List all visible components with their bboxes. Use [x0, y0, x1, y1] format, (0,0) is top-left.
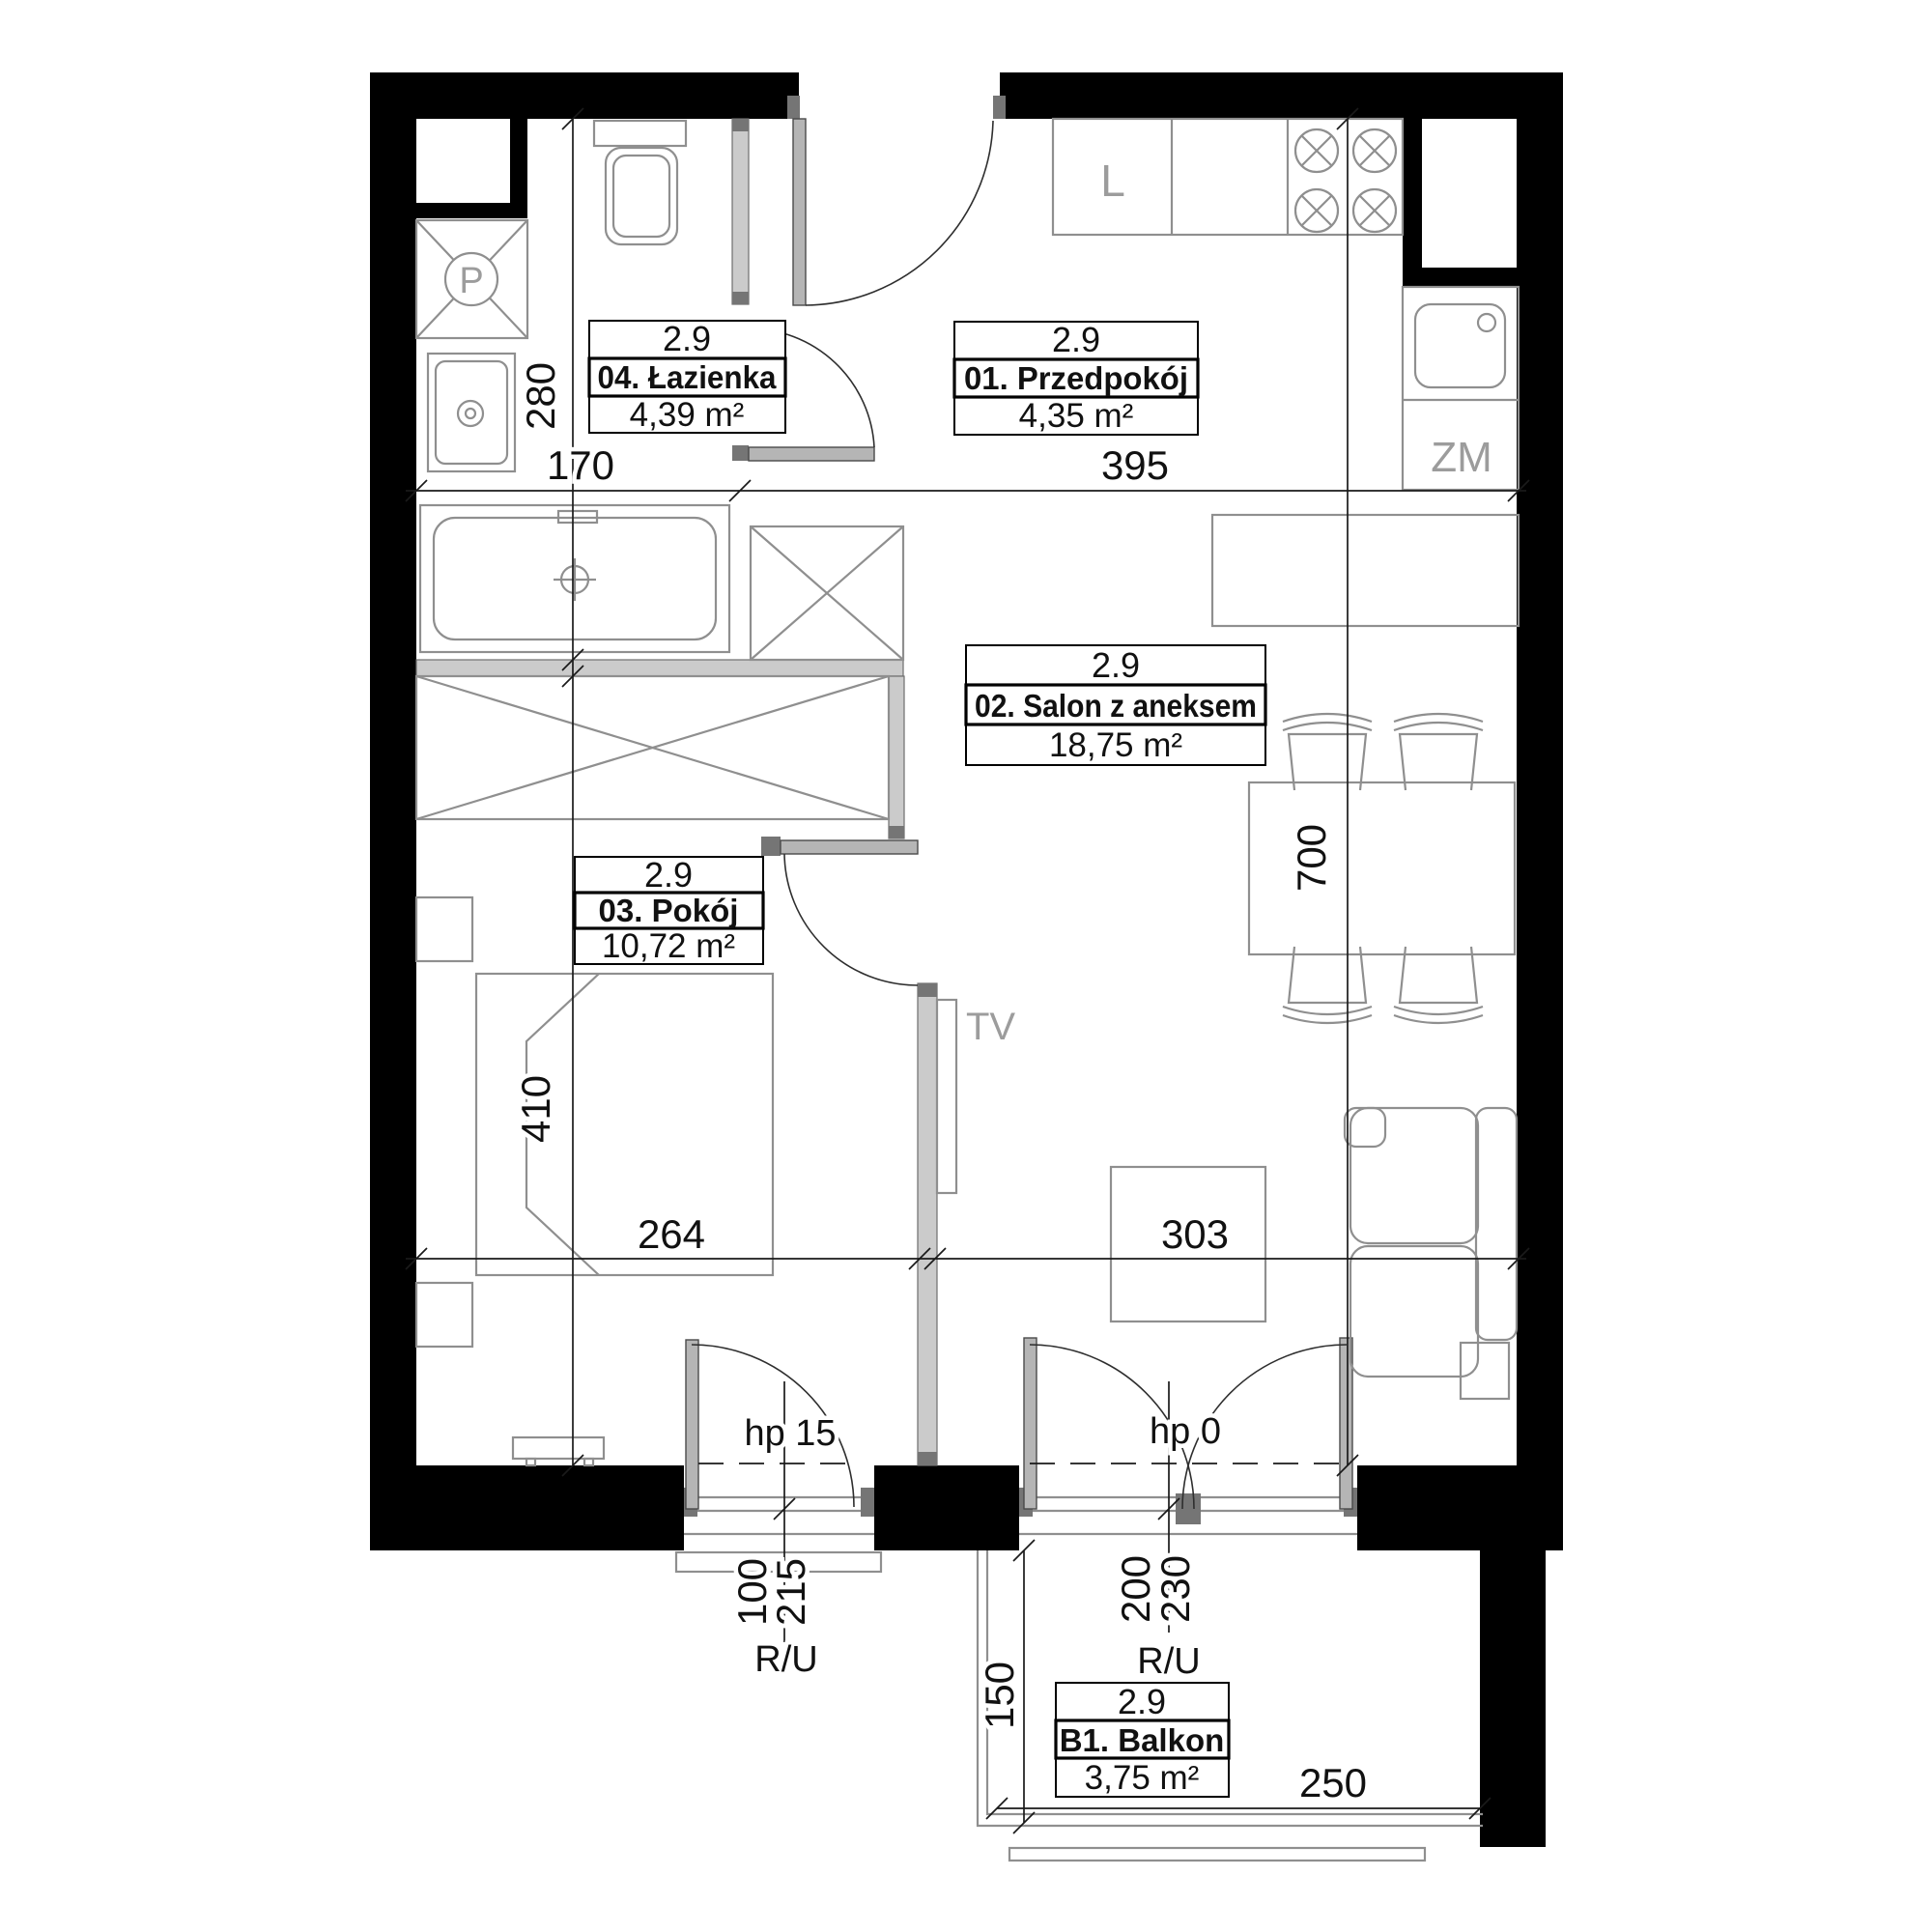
jamb-cap — [732, 292, 749, 304]
chair-back — [1283, 1007, 1372, 1014]
sink-drain-inner — [466, 409, 475, 418]
radiator-foot — [584, 1459, 593, 1465]
dim-303: 303 — [1161, 1211, 1229, 1257]
dim-230: 230 — [1152, 1555, 1198, 1623]
sofa-back — [1476, 1108, 1517, 1340]
burner-cross — [1301, 195, 1332, 226]
ceiling-height: 2.9 — [1118, 1682, 1166, 1721]
room-label-balcony: 2.9 B1. Balkon 3,75 m² — [1056, 1682, 1229, 1797]
balcony — [978, 1550, 1483, 1861]
kitchen-counter-dividers — [1172, 119, 1288, 235]
nightstand-top — [416, 897, 472, 961]
chair-back — [1394, 723, 1483, 730]
dim-170: 170 — [547, 442, 614, 488]
ceiling-height: 2.9 — [1092, 645, 1140, 685]
room-label-bedroom: 2.9 03. Pokój 10,72 m² — [575, 855, 763, 965]
wall-left — [370, 72, 416, 1550]
room-name: 04. Łazienka — [598, 359, 778, 395]
sofa-seat — [1350, 1246, 1478, 1377]
tv-label: TV — [966, 1006, 1015, 1048]
bedroom-door-leaf — [781, 840, 918, 854]
jamb-cap — [787, 96, 800, 119]
balcony-door-leaf-left — [1024, 1338, 1037, 1509]
dim-250: 250 — [1299, 1760, 1367, 1805]
room-label-salon: 2.9 02. Salon z aneksem 18,75 m² — [966, 645, 1265, 765]
shaft-right — [1422, 119, 1517, 268]
toilet-cistern — [594, 121, 686, 146]
chair-back — [1394, 1015, 1483, 1023]
toilet-seat — [613, 156, 669, 237]
room-name: 01. Przedpokój — [964, 360, 1188, 396]
wall-bottom-right — [1357, 1465, 1563, 1550]
partition-room-salon — [918, 983, 937, 1465]
floor-plan-drawing: P L — [0, 0, 1932, 1932]
kitchen-peninsula — [1212, 515, 1519, 626]
entrance-door — [787, 96, 1006, 305]
dim-200: 200 — [1113, 1555, 1158, 1623]
washing-machine: P — [416, 220, 527, 338]
cooktop — [1295, 129, 1396, 232]
dim-280: 280 — [518, 362, 563, 430]
wall-bottom-left — [370, 1465, 684, 1550]
dim-700: 700 — [1289, 824, 1334, 892]
burner-cross — [1359, 195, 1390, 226]
balcony-rail-outer — [978, 1550, 1483, 1826]
sofa — [1345, 1108, 1517, 1399]
wall-top-left — [370, 72, 799, 119]
nightstand-bottom — [416, 1283, 472, 1347]
room-area: 18,75 m² — [1049, 726, 1182, 764]
sink-drain — [458, 401, 483, 426]
fridge-label: L — [1100, 156, 1125, 206]
bathroom-sink — [428, 354, 515, 471]
window-leaf — [686, 1340, 698, 1509]
wall-balcony-right — [1480, 1550, 1546, 1847]
jamb-cap — [993, 96, 1006, 119]
room-area: 3,75 m² — [1085, 1759, 1200, 1797]
sink-cabinet — [428, 354, 515, 471]
window-opening — [684, 1465, 874, 1550]
partition-hall-nook — [889, 676, 904, 838]
room-name: 02. Salon z aneksem — [975, 688, 1257, 724]
wardrobe-bedroom-cross — [416, 676, 889, 819]
bedroom-door — [781, 840, 918, 985]
sofa-side-table — [1461, 1343, 1509, 1399]
chair-back — [1283, 723, 1372, 730]
radiator — [513, 1437, 604, 1465]
sofa-chaise — [1350, 1108, 1478, 1243]
partition-bathroom-east — [732, 119, 749, 304]
dim-264: 264 — [638, 1211, 705, 1257]
jamb-cap — [889, 826, 904, 838]
shaft-left — [416, 119, 510, 203]
entrance-door-leaf — [793, 119, 806, 305]
jamb-cap — [918, 983, 937, 997]
bedroom-door-swing — [784, 854, 918, 985]
ceiling-height: 2.9 — [1052, 320, 1100, 359]
partition-bathroom-south — [416, 660, 903, 676]
wall-right — [1517, 119, 1563, 1465]
window-hp15 — [676, 1340, 881, 1572]
balcony-sill-height: hp 0 — [1150, 1411, 1221, 1452]
toilet — [594, 121, 686, 244]
bathtub-faucet-cross — [554, 558, 596, 601]
washer-label: P — [459, 261, 483, 301]
chair — [1394, 714, 1483, 790]
radiator-foot — [526, 1459, 535, 1465]
jamb-cap — [732, 119, 749, 131]
bathtub — [420, 505, 729, 652]
ceiling-height: 2.9 — [644, 855, 693, 895]
kitchen-sink-tap — [1478, 314, 1495, 331]
kitchen-right-counter: ZM — [1403, 287, 1519, 490]
room-label-bathroom: 2.9 04. Łazienka 4,39 m² — [589, 319, 785, 434]
wardrobe-hall-cross — [751, 526, 903, 660]
balcony-ru-label: R/U — [1137, 1641, 1200, 1682]
chair-back — [1394, 714, 1483, 722]
dishwasher-label: ZM — [1431, 434, 1492, 481]
chair — [1283, 947, 1372, 1023]
entrance-door-swing — [806, 121, 993, 305]
window-ru-label: R/U — [754, 1639, 817, 1680]
room-area: 4,35 m² — [1019, 397, 1134, 435]
dim-215: 215 — [768, 1558, 813, 1626]
balcony-slab-edge — [1009, 1848, 1425, 1861]
wall-bottom-middle — [874, 1465, 1019, 1550]
wall-top-right — [1000, 72, 1563, 119]
chair-back — [1283, 1015, 1372, 1023]
toilet-bowl — [606, 148, 677, 244]
tv-cabinet — [937, 1000, 956, 1193]
jamb-cap — [861, 1488, 874, 1517]
dim-395: 395 — [1101, 442, 1169, 488]
dim-150: 150 — [977, 1662, 1022, 1729]
jamb-cap — [918, 1452, 937, 1465]
floor-plan-page: P L — [0, 0, 1932, 1932]
room-name: 03. Pokój — [599, 893, 739, 928]
room-name: B1. Balkon — [1060, 1722, 1225, 1758]
chair-back — [1283, 714, 1372, 722]
chair — [1394, 947, 1483, 1023]
room-label-hallway: 2.9 01. Przedpokój 4,35 m² — [954, 320, 1198, 435]
sink-basin — [436, 361, 507, 464]
dim-410: 410 — [513, 1075, 558, 1143]
jamb-cap — [732, 445, 749, 461]
burner-cross — [1301, 135, 1332, 166]
room-area: 4,39 m² — [630, 396, 745, 434]
ceiling-height: 2.9 — [663, 319, 711, 358]
burner-cross — [1359, 135, 1390, 166]
chair — [1283, 714, 1372, 790]
window-sill-height: hp 15 — [744, 1413, 836, 1454]
bathroom-door-leaf — [749, 447, 874, 461]
room-area: 10,72 m² — [602, 927, 735, 965]
radiator-body — [513, 1437, 604, 1459]
chair-back — [1394, 1007, 1483, 1014]
jamb-stub-bedroom-door — [761, 837, 781, 856]
doors-and-windows — [676, 96, 1357, 1572]
